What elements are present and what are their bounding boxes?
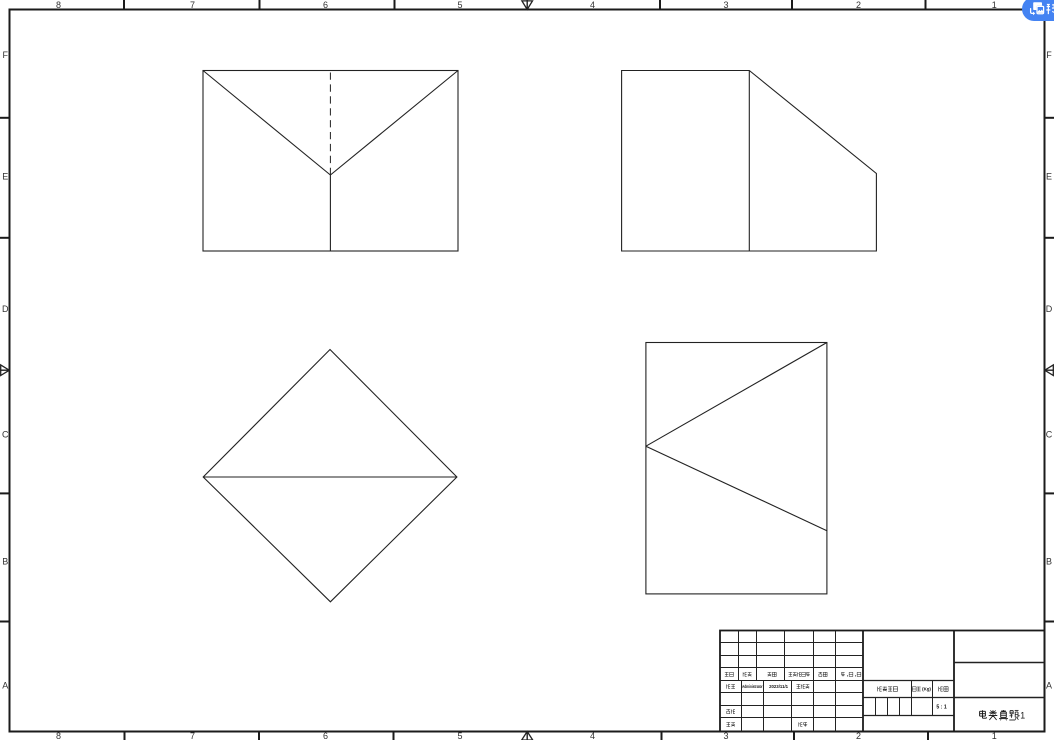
svg-text:6: 6 [323, 731, 328, 740]
svg-text:D: D [1046, 304, 1053, 314]
svg-text:5: 5 [457, 0, 462, 10]
svg-text:C: C [1046, 430, 1053, 440]
svg-text:8: 8 [56, 731, 61, 740]
svg-text:A: A [2, 681, 8, 691]
svg-text:2: 2 [856, 0, 861, 10]
svg-text:4: 4 [590, 731, 595, 740]
svg-text:F: F [1046, 50, 1052, 60]
svg-text:4: 4 [590, 0, 595, 10]
svg-text:D: D [2, 304, 9, 314]
svg-text:1: 1 [992, 0, 997, 10]
svg-text:B: B [2, 557, 8, 567]
svg-text:A: A [1046, 681, 1052, 691]
svg-text:5 : 1: 5 : 1 [936, 704, 946, 710]
svg-text:C: C [2, 430, 9, 440]
svg-text:3: 3 [723, 0, 728, 10]
svg-text:F: F [2, 50, 8, 60]
svg-text:B: B [1046, 557, 1052, 567]
svg-text:Administrator: Administrator [742, 684, 763, 689]
svg-text:5: 5 [457, 731, 462, 740]
svg-text:E: E [2, 172, 8, 182]
svg-text:7: 7 [190, 0, 195, 10]
svg-text:E: E [1046, 172, 1052, 182]
svg-text:7: 7 [190, 731, 195, 740]
svg-text:6: 6 [323, 0, 328, 10]
svg-text:8: 8 [56, 0, 61, 10]
svg-text:-1: -1 [1017, 711, 1025, 721]
svg-text:(Kg): (Kg) [922, 687, 931, 692]
svg-text:2023/11/1: 2023/11/1 [769, 684, 788, 689]
